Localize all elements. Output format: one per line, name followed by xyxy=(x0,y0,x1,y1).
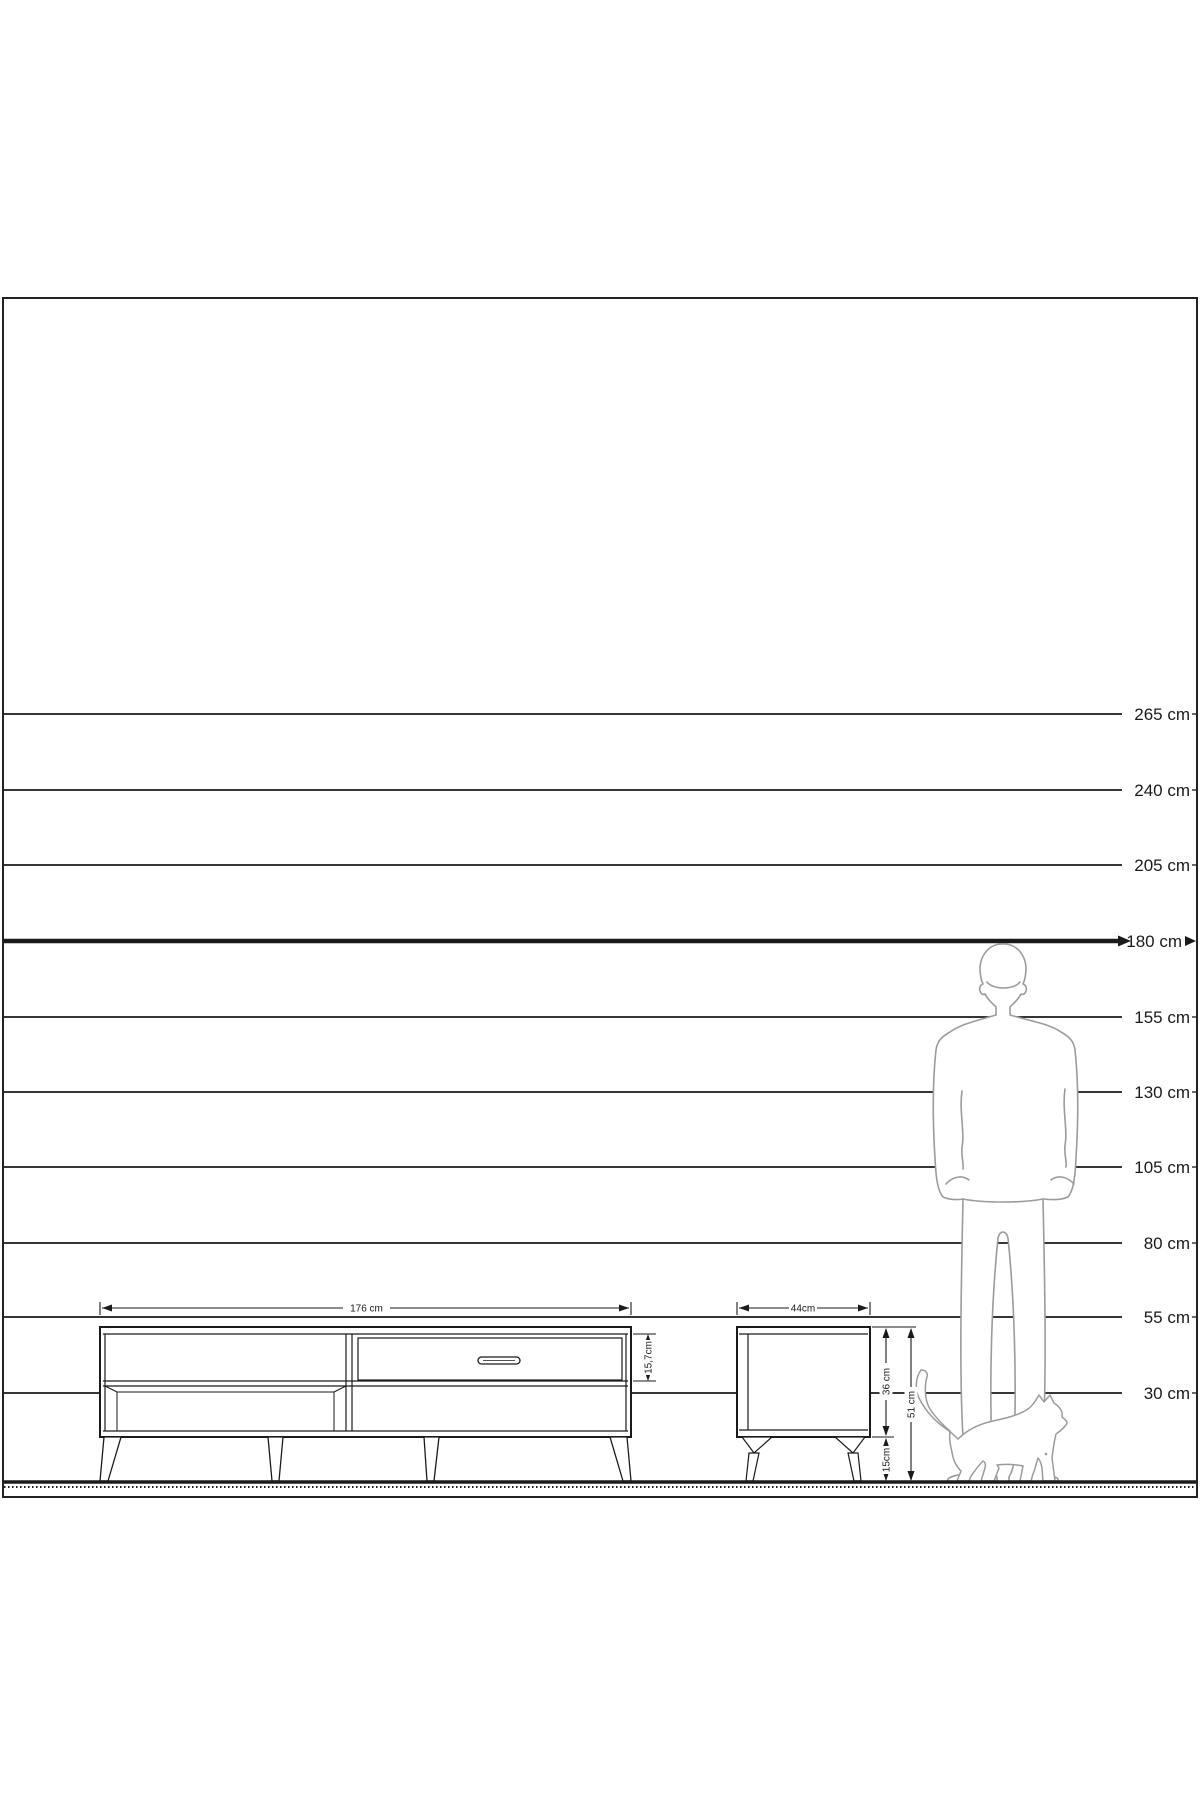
height-scale-label-130: 130 cm xyxy=(1134,1083,1190,1102)
height-scale-label-265: 265 cm xyxy=(1134,705,1190,724)
nightstand-width-dimension: 44cm xyxy=(737,1302,870,1315)
tv-stand-width-dimension: 176 cm xyxy=(100,1302,631,1315)
height-scale-line-240: 240 cm xyxy=(4,781,1197,800)
height-scale-label-30: 30 cm xyxy=(1144,1384,1190,1403)
tv-stand-drawing xyxy=(100,1327,631,1481)
tv-stand-width-label: 176 cm xyxy=(350,1304,383,1315)
tv-stand-drawer-height-label: 15,7cm xyxy=(644,1341,655,1374)
nightstand-total-height-label: 51 cm xyxy=(907,1391,918,1418)
ground-line xyxy=(4,1482,1196,1487)
diagram-svg: 265 cm 240 cm 205 cm 180 cm 155 cm 130 c… xyxy=(0,0,1200,1800)
nightstand-drawing xyxy=(737,1327,870,1481)
man-outline xyxy=(933,944,1078,1482)
nightstand-total-height-dimension: 51 cm xyxy=(905,1328,918,1481)
nightstand-width-label: 44cm xyxy=(791,1304,815,1315)
cat-fur-dot xyxy=(1045,1453,1048,1456)
nightstand-leg-height-dimension: 15cm xyxy=(880,1438,893,1481)
height-scale-label-155: 155 cm xyxy=(1134,1008,1190,1027)
nightstand-legs xyxy=(742,1437,865,1481)
nightstand-body xyxy=(737,1327,870,1437)
nightstand-body-height-label: 36 cm xyxy=(882,1368,893,1395)
height-scale-label-80: 80 cm xyxy=(1144,1234,1190,1253)
tv-stand-legs xyxy=(100,1437,631,1481)
height-scale-label-205: 205 cm xyxy=(1134,856,1190,875)
height-scale-label-105: 105 cm xyxy=(1134,1158,1190,1177)
diagram-canvas: 265 cm 240 cm 205 cm 180 cm 155 cm 130 c… xyxy=(0,0,1200,1800)
height-scale-label-55: 55 cm xyxy=(1144,1308,1190,1327)
height-scale-label-180: 180 cm xyxy=(1126,932,1182,951)
height-scale-line-205: 205 cm xyxy=(4,856,1197,875)
height-scale-line-265: 265 cm xyxy=(4,705,1197,724)
nightstand-leg-height-label: 15cm xyxy=(882,1448,893,1472)
height-scale-label-240: 240 cm xyxy=(1134,781,1190,800)
man-silhouette xyxy=(933,944,1078,1482)
tv-stand-body xyxy=(100,1327,631,1437)
tv-stand-drawer-height-dimension: 15,7cm xyxy=(633,1334,656,1381)
